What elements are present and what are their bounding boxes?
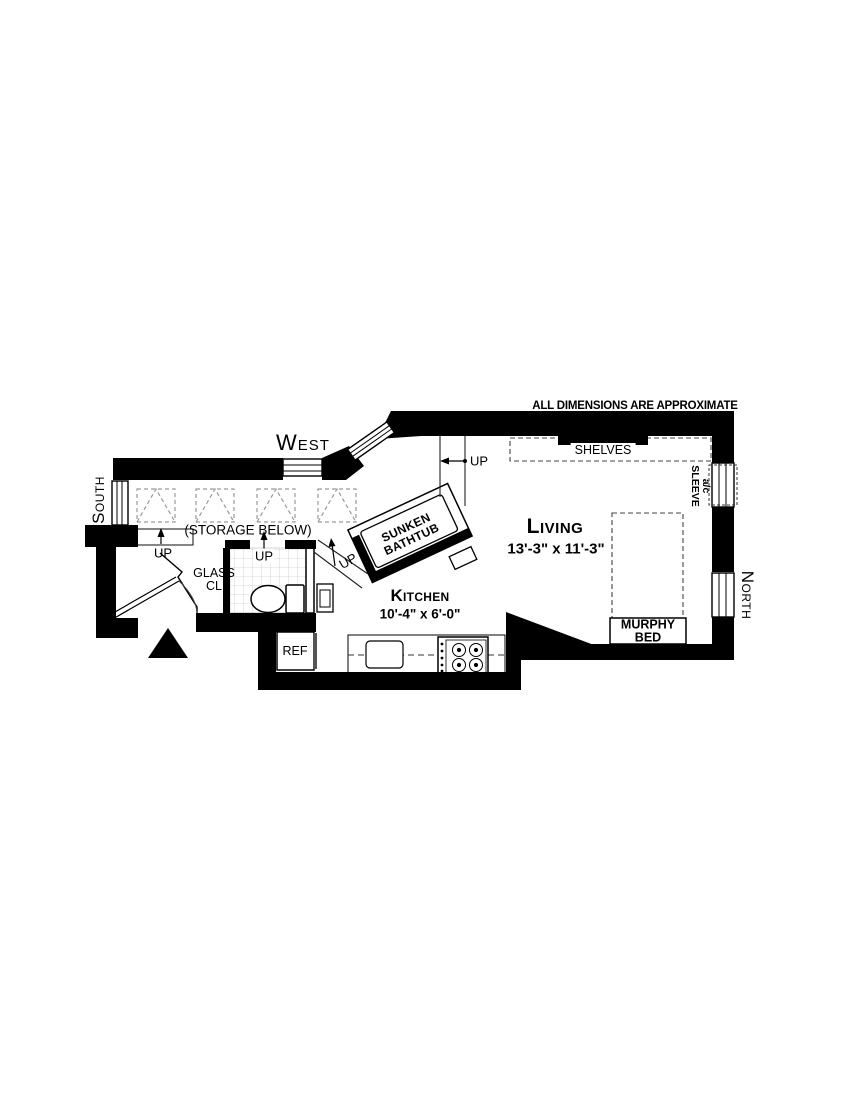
floorplan-page: ALL DIMENSIONS ARE APPROXIMATE West Sout… [0,0,845,1093]
kitchen-label: Kitchen [390,586,449,606]
refrigerator-label: REF [283,644,308,658]
glass-closet-label: GLASS CL [193,567,235,593]
north-window [712,573,734,617]
ac-sleeve-label-line1: a/c [700,465,711,506]
compass-north-label: North [737,571,757,620]
south-window [112,481,128,525]
up-label-bathroom: UP [254,549,274,564]
wall-fixture [317,584,333,612]
living-room-label: Living [527,515,584,539]
entrance-marker-triangle [148,628,188,658]
kitchen-dimensions: 10'-4" x 6'-0" [380,607,461,622]
glass-closet-label-line2: CL [193,580,235,593]
bathroom-partition-wall [306,545,314,613]
up-arrow-passage [329,538,336,566]
storage-below-label: (STORAGE BELOW) [184,523,311,538]
kitchen-sink [366,641,403,668]
stove [438,637,488,675]
angled-window [348,422,395,460]
murphy-bed-label-line1: MURPHY [621,619,675,632]
living-room-dimensions: 13'-3" x 11'-3" [507,541,604,558]
shelves-label: SHELVES [571,443,636,457]
disclaimer-text: ALL DIMENSIONS ARE APPROXIMATE [532,400,738,412]
compass-south-label: South [89,476,109,524]
ac-sleeve-label: a/c SLEEVE [689,465,711,506]
murphy-bed-label-line2: BED [621,631,675,644]
murphy-bed-label: MURPHY BED [621,619,675,644]
west-window [283,459,322,476]
ac-sleeve-window [709,463,737,507]
ac-sleeve-label-line2: SLEEVE [689,465,700,506]
up-arrow-living-entry [440,458,467,465]
toilet [251,585,304,613]
entry-door [108,577,197,620]
compass-west-label: West [276,430,330,456]
floorplan-drawing [0,0,845,1093]
storage-closets [137,489,356,522]
up-label-living-entry: UP [470,454,488,469]
up-label-storage: UP [154,546,172,561]
